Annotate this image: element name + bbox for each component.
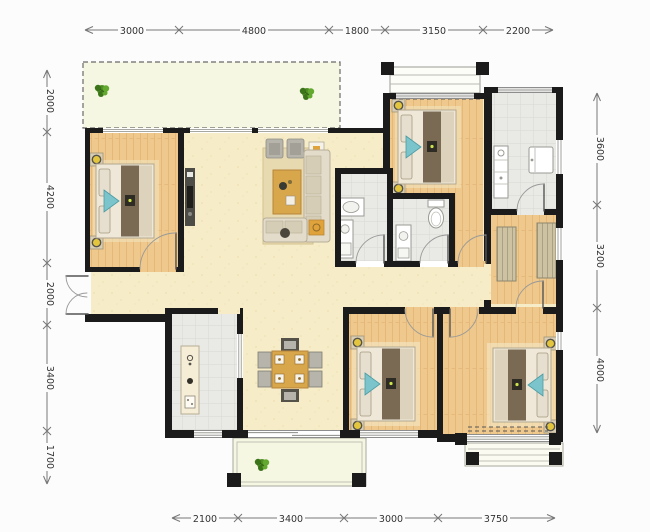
window: [556, 140, 563, 174]
wardrobe: [537, 223, 556, 278]
dim-label-left-3: 3400: [44, 366, 55, 390]
window: [103, 128, 163, 133]
window: [360, 431, 418, 438]
bedroom2-bed: [392, 99, 461, 195]
bedroom3-bed: [351, 336, 420, 432]
toilet: [429, 208, 444, 228]
bottom-right-terrace: [465, 443, 563, 466]
floor-plan-drawing: 3000 4800 1800 3150 2200 2100 3400 3000 …: [0, 0, 650, 532]
dim-label-top-2: 1800: [345, 26, 369, 37]
bedroom2-nook-floor: [455, 194, 483, 261]
window: [194, 431, 222, 438]
kitchenette-opening: [218, 308, 240, 314]
tv-console: [185, 168, 195, 226]
dim-label-left-2: 2000: [44, 282, 55, 306]
dining-chair: [258, 371, 271, 387]
kitchen-counter: [494, 146, 508, 198]
window: [258, 128, 328, 133]
window: [396, 94, 474, 99]
fridge: [529, 147, 553, 173]
top-terrace: [83, 62, 340, 128]
closet-opening: [484, 264, 491, 300]
dim-label-top-4: 2200: [506, 26, 530, 37]
dim-label-bottom-1: 3400: [279, 514, 303, 525]
floor-plan: 3000 4800 1800 3150 2200 2100 3400 3000 …: [0, 0, 650, 532]
dim-label-left-0: 2000: [44, 89, 55, 113]
side-table: [309, 220, 324, 235]
dim-label-bottom-0: 2100: [193, 514, 217, 525]
dimension-line-top: [85, 26, 553, 34]
sofa-set: [263, 139, 330, 244]
dining-chair: [258, 352, 271, 368]
window: [237, 334, 243, 378]
dining-chair: [309, 352, 322, 368]
dim-label-right-0: 3600: [594, 137, 605, 161]
dim-label-right-1: 3200: [594, 244, 605, 268]
kitchen-island: [181, 346, 199, 414]
sliding-door: [248, 431, 340, 438]
dim-label-top-0: 3000: [120, 26, 144, 37]
entry-double-door: [66, 272, 91, 314]
window: [556, 228, 563, 260]
dim-label-top-3: 3150: [422, 26, 446, 37]
wardrobe: [497, 227, 516, 281]
window: [556, 332, 563, 350]
dim-label-bottom-2: 3000: [379, 514, 403, 525]
dim-label-right-2: 4000: [594, 358, 605, 382]
dim-label-left-4: 1700: [44, 445, 55, 469]
window: [498, 88, 552, 93]
window: [190, 128, 252, 133]
master-bed: [90, 153, 159, 249]
dimension-line-left: [43, 70, 51, 484]
bedroom4-bed: [487, 337, 557, 433]
dining-chair: [309, 371, 322, 387]
dim-label-bottom-3: 3750: [484, 514, 508, 525]
dim-label-top-1: 4800: [242, 26, 266, 37]
dim-label-left-1: 4200: [44, 185, 55, 209]
bottom-balcony: [227, 438, 366, 487]
coffee-table: [273, 170, 301, 214]
